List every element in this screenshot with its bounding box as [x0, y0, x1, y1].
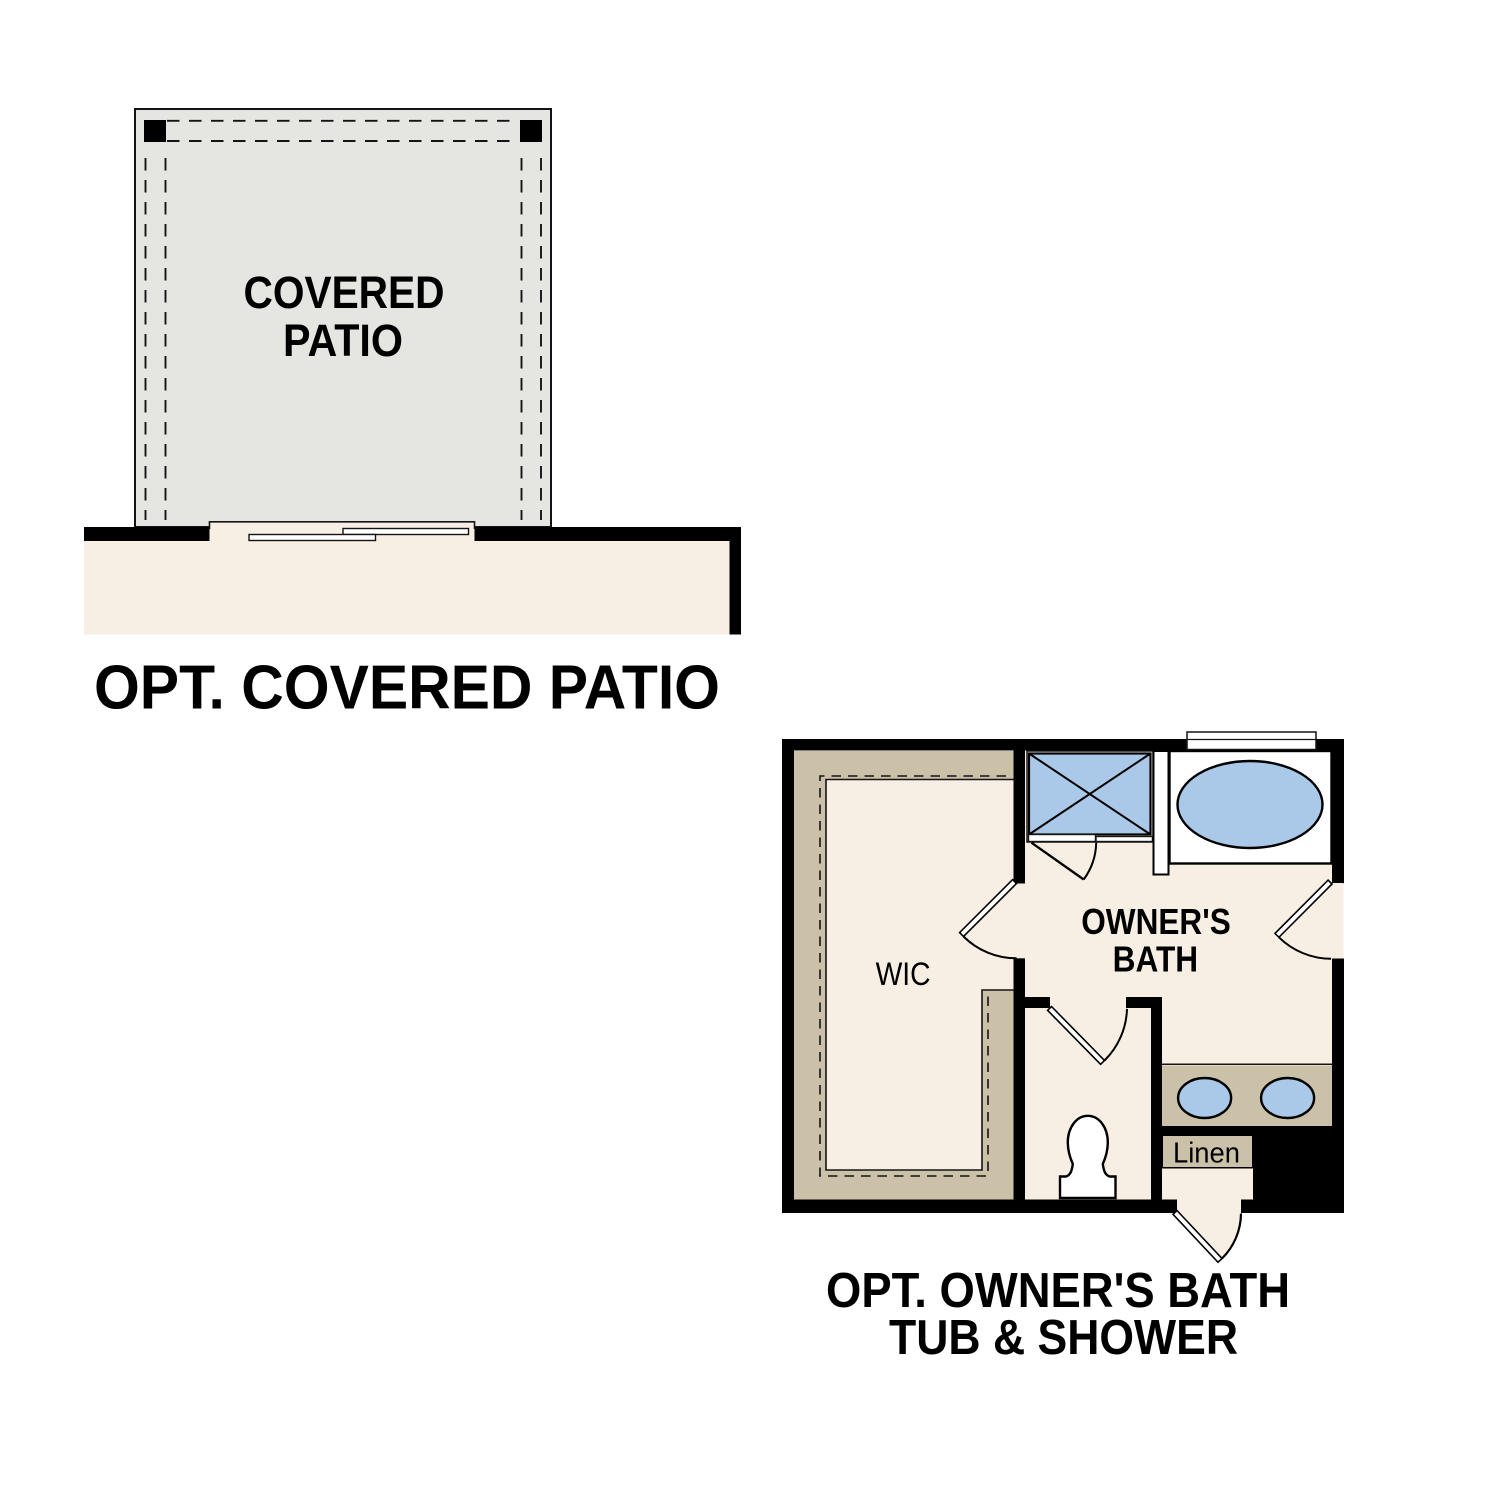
- svg-text:COVERED: COVERED: [244, 267, 445, 318]
- svg-text:BATH: BATH: [1113, 938, 1199, 979]
- svg-text:Linen: Linen: [1173, 1137, 1240, 1169]
- svg-text:OWNER'S: OWNER'S: [1081, 901, 1231, 942]
- svg-text:PATIO: PATIO: [283, 315, 403, 366]
- svg-text:WIC: WIC: [876, 956, 931, 992]
- svg-text:TUB & SHOWER: TUB & SHOWER: [889, 1311, 1238, 1365]
- svg-text:OPT. COVERED PATIO: OPT. COVERED PATIO: [94, 654, 720, 723]
